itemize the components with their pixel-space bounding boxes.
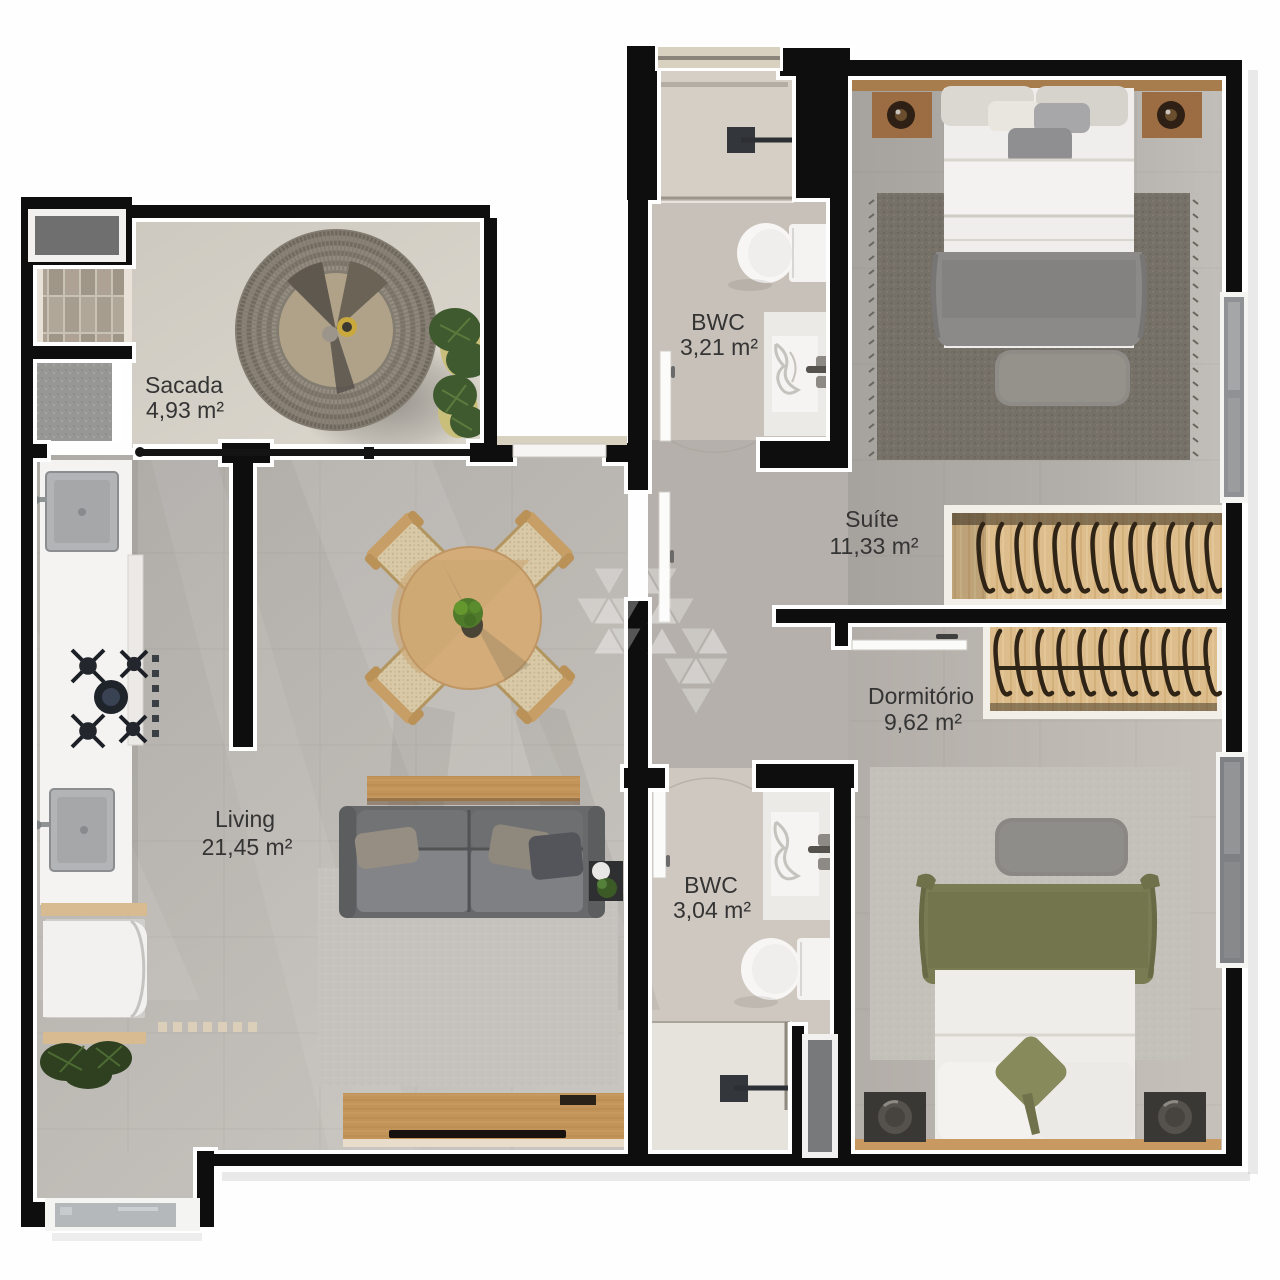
svg-text:BWC: BWC — [684, 872, 738, 898]
svg-text:Sacada: Sacada — [145, 372, 223, 398]
svg-text:BWC: BWC — [691, 309, 745, 335]
svg-text:3,21 m²: 3,21 m² — [680, 334, 758, 360]
svg-text:21,45 m²: 21,45 m² — [202, 834, 293, 860]
svg-text:11,33 m²: 11,33 m² — [829, 533, 918, 559]
svg-text:Dormitório: Dormitório — [868, 683, 974, 709]
svg-text:Living: Living — [215, 806, 275, 832]
svg-text:9,62 m²: 9,62 m² — [884, 709, 962, 735]
svg-text:4,93 m²: 4,93 m² — [146, 397, 224, 423]
svg-text:Suíte: Suíte — [845, 506, 899, 532]
svg-text:3,04 m²: 3,04 m² — [673, 897, 751, 923]
